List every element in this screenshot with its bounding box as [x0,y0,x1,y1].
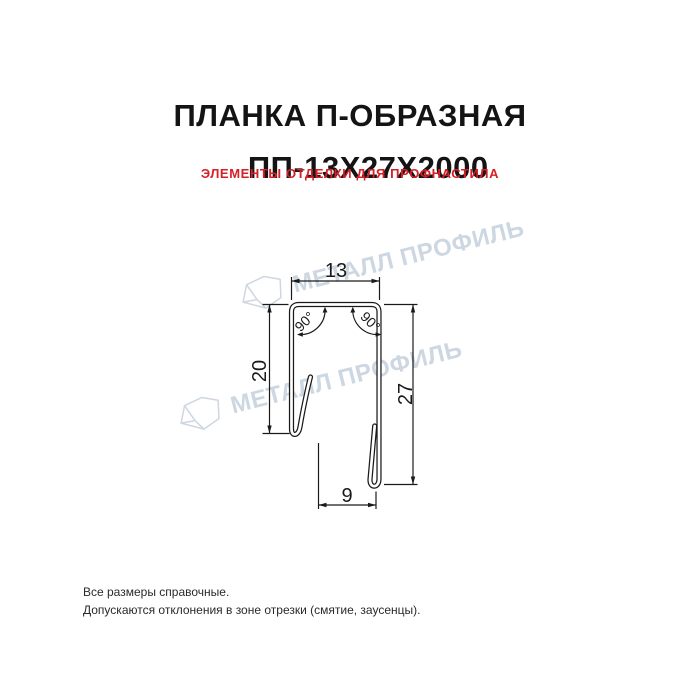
page: МЕТАЛЛ ПРОФИЛЬ МЕТАЛЛ ПРОФИЛЬ ПЛАНКА П-О… [0,0,700,700]
dim-label-top-width: 13 [325,260,347,282]
dim-top-width: 13 [292,260,380,300]
footer-note-2: Допускаются отклонения в зоне отрезки (с… [83,601,420,619]
dim-right-height: 27 [384,305,418,485]
footer-note-1: Все размеры справочные. [83,583,420,601]
dim-bottom-width: 9 [319,443,377,509]
dim-label-bottom-width: 9 [341,485,352,507]
footer-notes: Все размеры справочные. Допускаются откл… [83,583,420,619]
dim-label-right-height: 27 [395,383,417,405]
angle-left-90: 90° [291,307,327,337]
dim-left-height: 20 [249,305,290,434]
dim-label-left-height: 20 [249,360,271,382]
